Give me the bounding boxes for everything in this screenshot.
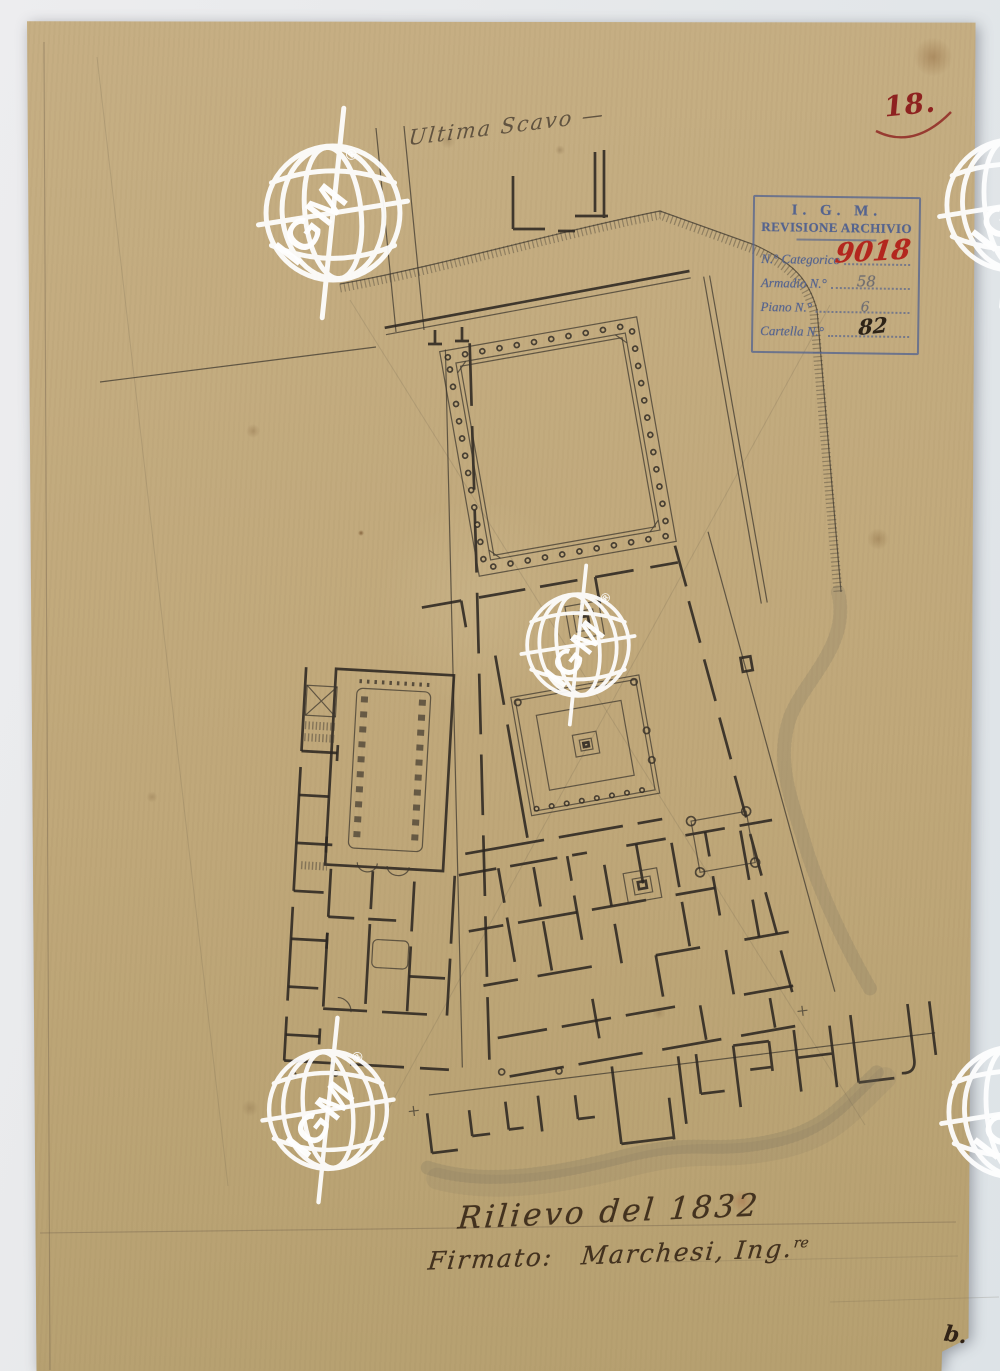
signature-prefix: Firmato: [427, 1242, 555, 1276]
stamp-dotted-line: 9018 [844, 263, 910, 266]
stamp-field-label: Cartella N.° [760, 323, 824, 340]
stamp-dotted-line: 82 [828, 335, 909, 338]
folio-number: 18. [882, 85, 937, 123]
stamp-field-label: Piano N.° [760, 299, 812, 316]
stamp-dotted-line: 58 [831, 287, 910, 290]
stamp-field-value: 58 [857, 272, 876, 290]
stamp-field-row: N.° Categorico 9018 [754, 243, 918, 269]
signature-superscript: re [793, 1235, 810, 1252]
stamp-field-label: Armadio N.° [761, 275, 827, 292]
stamp-field-row: Armadio N.° 58 [754, 267, 918, 293]
archive-stamp: I. G. M. REVISIONE ARCHIVIO N.° Categori… [751, 195, 921, 355]
stamp-field-value: 82 [858, 312, 888, 340]
corner-mark: b. [942, 1321, 968, 1350]
stamp-field-row: Piano N.° 6 [753, 291, 917, 317]
stamp-field-label: N.° Categorico [761, 251, 840, 268]
stamp-field-row: Cartella N.° 82 [753, 315, 917, 341]
stamp-field-value: 9018 [833, 234, 912, 269]
